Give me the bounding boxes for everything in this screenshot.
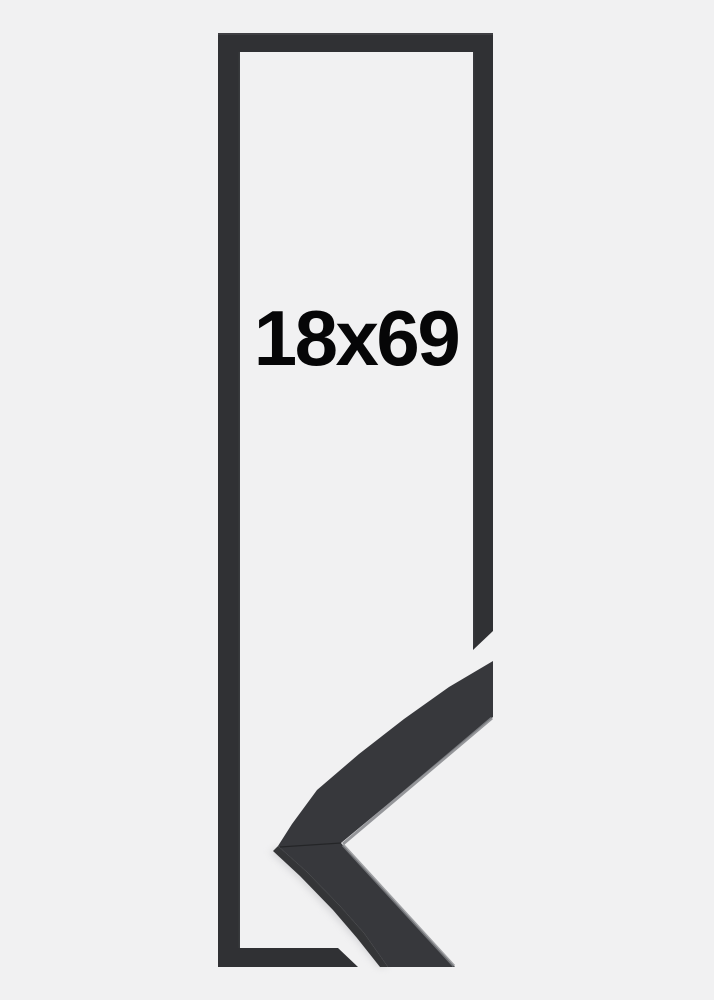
frame-outline-right-inner-sheen bbox=[473, 52, 475, 647]
frame-outline-bottom-bar-cut bbox=[218, 948, 358, 967]
frame-outline-left-bar bbox=[218, 33, 240, 967]
frame-outline-top-edge-sheen bbox=[218, 33, 493, 35]
frame-outline-left-inner-sheen bbox=[239, 52, 241, 948]
size-label: 18x69 bbox=[254, 299, 458, 377]
frame-outline-right-bar-cut bbox=[473, 33, 493, 650]
frame-product-image: 18x69 bbox=[0, 0, 714, 1000]
corner-photo-top-face bbox=[278, 661, 493, 967]
frame-outline-top-bar bbox=[218, 33, 493, 52]
frame-illustration bbox=[0, 0, 714, 1000]
corner-photo bbox=[270, 661, 493, 967]
